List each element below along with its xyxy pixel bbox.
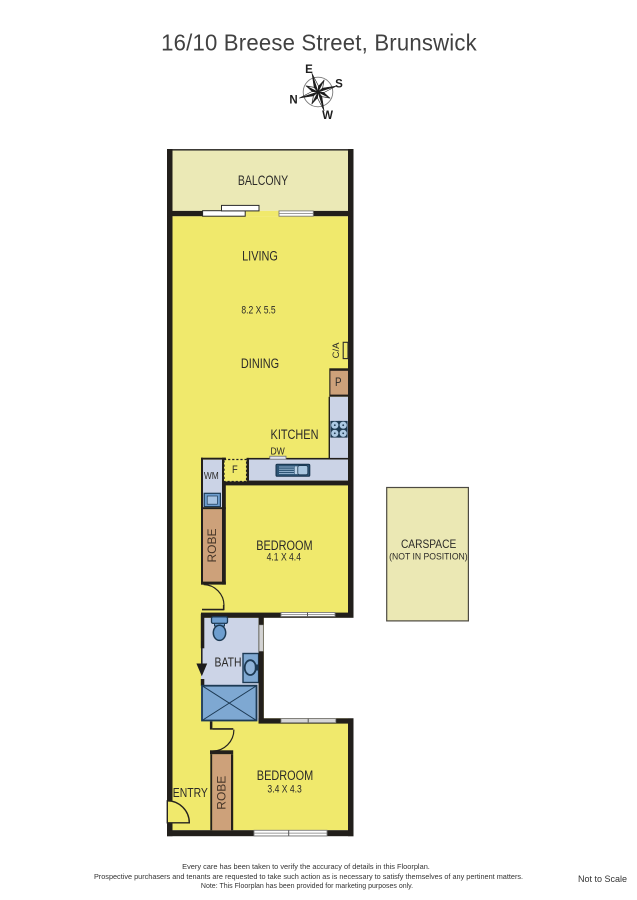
svg-text:CARSPACE: CARSPACE bbox=[401, 539, 456, 552]
svg-text:WM: WM bbox=[204, 470, 219, 482]
svg-text:BATH: BATH bbox=[215, 655, 242, 669]
svg-text:LIVING: LIVING bbox=[242, 248, 278, 264]
svg-text:ROBE: ROBE bbox=[215, 776, 229, 810]
svg-text:KITCHEN: KITCHEN bbox=[271, 427, 319, 443]
svg-text:Prospective purchasers and ten: Prospective purchasers and tenants are r… bbox=[94, 872, 523, 881]
svg-text:F: F bbox=[232, 464, 238, 476]
svg-text:Every care has been taken to v: Every care has been taken to verify the … bbox=[182, 862, 430, 871]
svg-text:BALCONY: BALCONY bbox=[238, 173, 288, 189]
svg-text:Note: This Floorplan has been: Note: This Floorplan has been provided f… bbox=[201, 883, 413, 890]
svg-text:DW: DW bbox=[270, 446, 285, 458]
svg-text:E: E bbox=[305, 64, 313, 76]
svg-text:Not to Scale: Not to Scale bbox=[578, 874, 627, 884]
svg-text:4.1 X 4.4: 4.1 X 4.4 bbox=[267, 551, 302, 563]
svg-text:(NOT IN POSITION): (NOT IN POSITION) bbox=[389, 551, 468, 561]
svg-text:N: N bbox=[289, 95, 297, 107]
svg-text:S: S bbox=[335, 79, 343, 91]
svg-text:16/10 Breese Street, Brunswick: 16/10 Breese Street, Brunswick bbox=[161, 30, 477, 55]
svg-text:BEDROOM: BEDROOM bbox=[257, 768, 313, 784]
svg-text:W: W bbox=[322, 110, 333, 122]
svg-text:ROBE: ROBE bbox=[205, 528, 219, 562]
svg-text:C/A: C/A bbox=[331, 342, 342, 359]
svg-text:P: P bbox=[335, 376, 342, 389]
svg-text:3.4 X 4.3: 3.4 X 4.3 bbox=[267, 784, 302, 796]
svg-text:DINING: DINING bbox=[241, 355, 279, 371]
svg-text:ENTRY: ENTRY bbox=[173, 786, 208, 800]
svg-text:8.2 X 5.5: 8.2 X 5.5 bbox=[241, 305, 276, 317]
